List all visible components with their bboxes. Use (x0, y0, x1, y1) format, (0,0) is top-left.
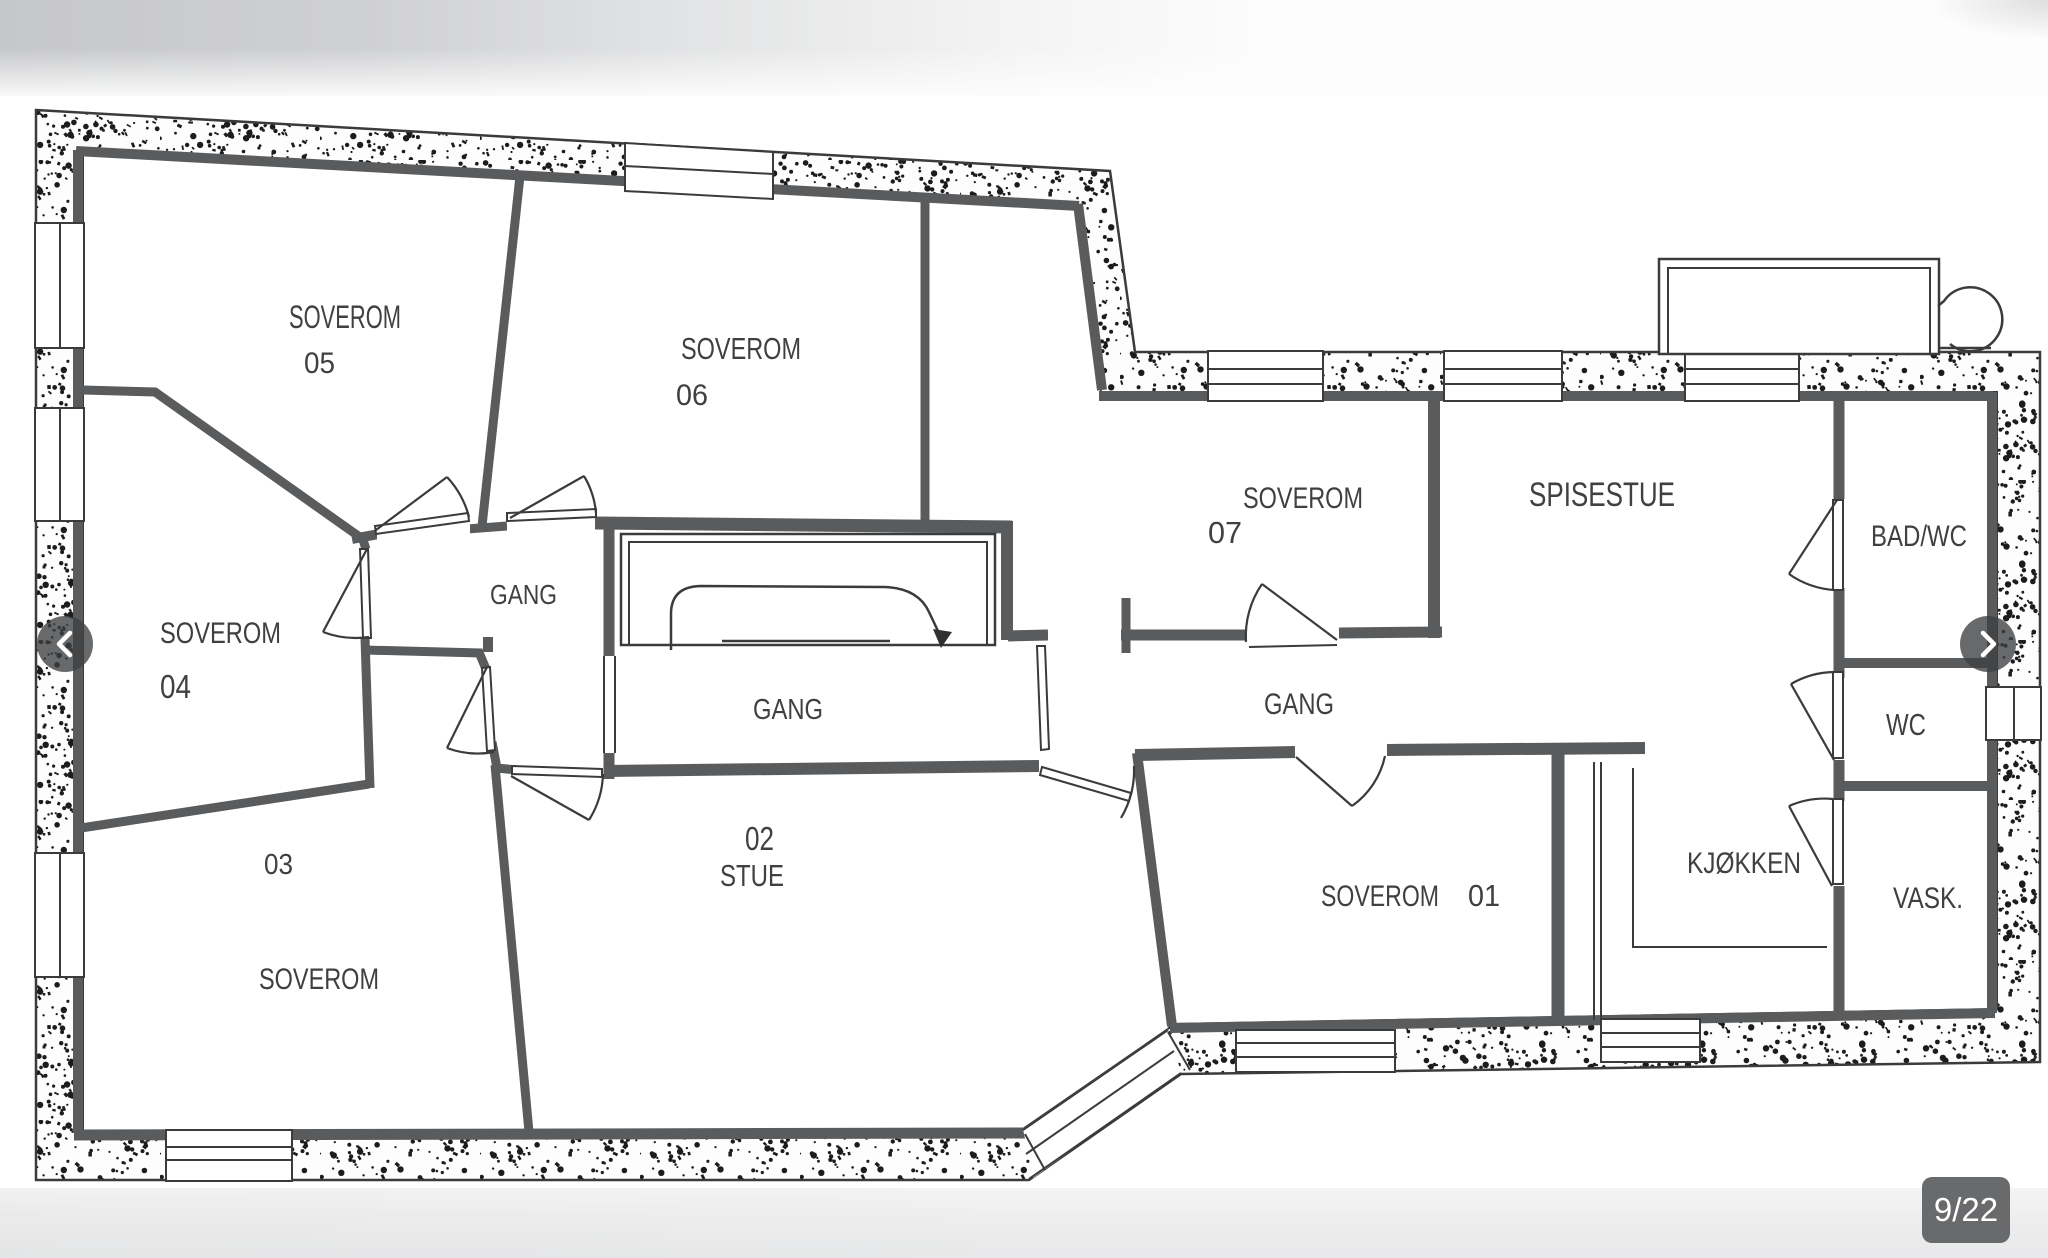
svg-text:GANG: GANG (1264, 688, 1334, 721)
svg-text:BAD/WC: BAD/WC (1871, 520, 1967, 553)
svg-text:SOVEROM: SOVEROM (681, 331, 801, 366)
svg-text:WC: WC (1886, 707, 1926, 742)
svg-text:01: 01 (1468, 878, 1500, 913)
svg-text:02: 02 (745, 820, 774, 857)
svg-text:GANG: GANG (490, 579, 557, 610)
svg-text:SOVEROM: SOVEROM (289, 299, 401, 335)
svg-text:SOVEROM: SOVEROM (160, 617, 281, 650)
svg-text:SOVEROM: SOVEROM (1243, 482, 1363, 515)
svg-text:GANG: GANG (753, 694, 823, 726)
svg-text:STUE: STUE (720, 858, 784, 893)
svg-text:03: 03 (264, 849, 293, 881)
svg-text:KJØKKEN: KJØKKEN (1687, 847, 1801, 880)
svg-text:06: 06 (676, 379, 708, 412)
svg-text:SPISESTUE: SPISESTUE (1529, 476, 1675, 514)
svg-text:VASK.: VASK. (1893, 882, 1963, 915)
svg-text:SOVEROM: SOVEROM (1321, 880, 1439, 913)
svg-text:07: 07 (1208, 515, 1242, 550)
svg-text:SOVEROM: SOVEROM (259, 963, 379, 996)
svg-text:04: 04 (160, 668, 191, 705)
svg-text:05: 05 (304, 347, 335, 380)
